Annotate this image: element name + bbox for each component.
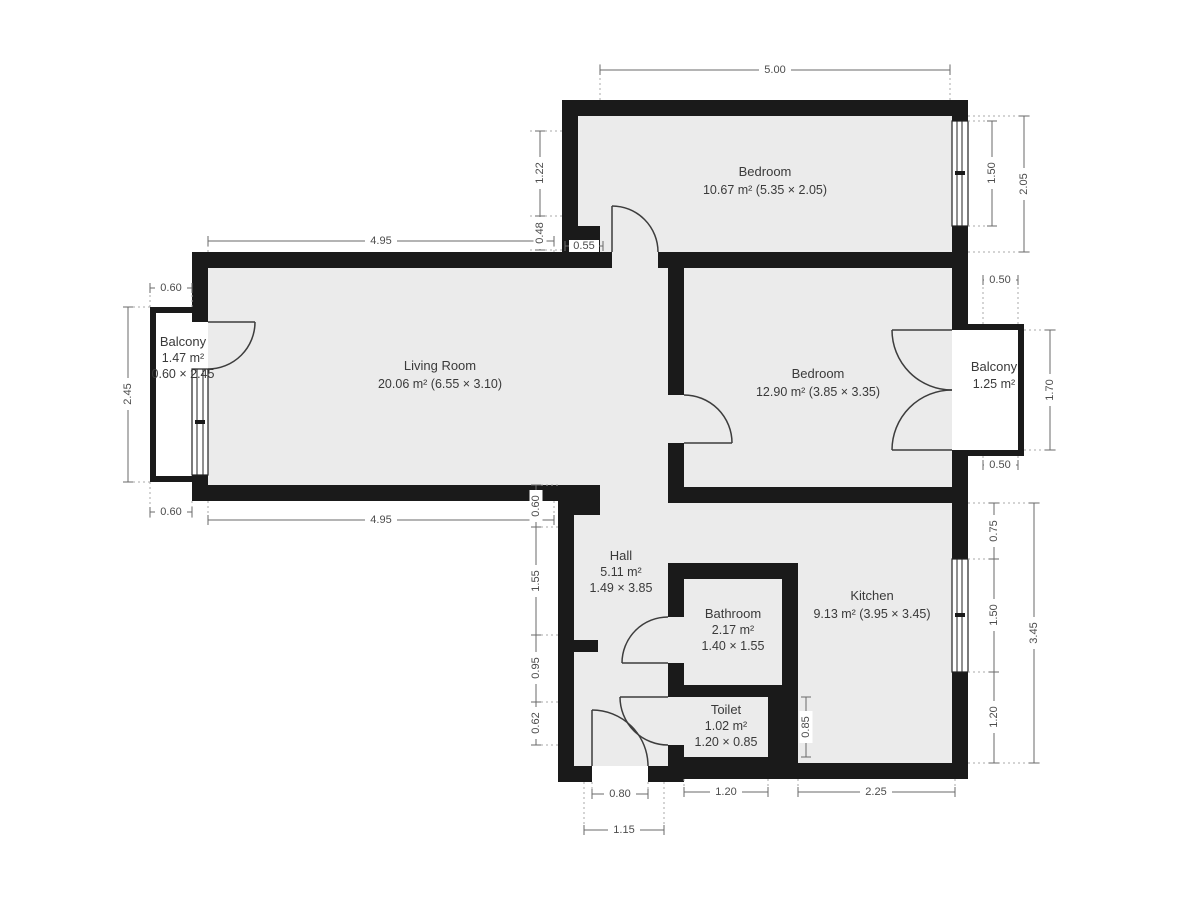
svg-text:Bathroom: Bathroom xyxy=(705,606,761,621)
dim-balcony-right-depth-bottom: 0.50 xyxy=(983,459,1018,472)
dim-label: 1.50 xyxy=(986,162,998,183)
bedroom-right-doorway xyxy=(668,395,684,443)
dim-kitchen-window: 1.50 xyxy=(988,559,1001,672)
dim-kitchen-right-upper: 0.75 xyxy=(988,503,1001,559)
dim-label: 1.20 xyxy=(715,786,736,798)
dim-label: 0.50 xyxy=(989,459,1010,471)
dim-label: 1.55 xyxy=(530,570,542,591)
dim-hall-seg-lower: 0.62 xyxy=(530,702,543,745)
dim-label: 1.50 xyxy=(988,604,1000,625)
dim-toilet-width: 1.20 xyxy=(684,786,768,799)
dim-label: 4.95 xyxy=(370,235,391,247)
svg-text:1.40 × 1.55: 1.40 × 1.55 xyxy=(702,639,765,653)
dim-label: 2.25 xyxy=(865,786,886,798)
bedroom-top-doorway xyxy=(612,252,658,268)
dim-label: 3.45 xyxy=(1028,622,1040,643)
dim-notch-offset: 0.48 xyxy=(534,216,547,250)
dim-hall-step: 0.60 xyxy=(530,485,543,527)
svg-text:2.17 m²: 2.17 m² xyxy=(712,623,754,637)
svg-text:1.47 m²: 1.47 m² xyxy=(162,351,204,365)
dim-label: 0.60 xyxy=(160,506,181,518)
svg-text:Bedroom: Bedroom xyxy=(739,164,792,179)
svg-text:10.67 m² (5.35 × 2.05): 10.67 m² (5.35 × 2.05) xyxy=(703,183,827,197)
label-balcony-right: Balcony 1.25 m² xyxy=(971,359,1018,391)
dim-label: 1.70 xyxy=(1044,379,1056,400)
dim-label: 1.15 xyxy=(613,824,634,836)
floor-plan-canvas: 5.00 4.95 4.95 0.55 0.60 0.60 xyxy=(0,0,1200,900)
dim-hall-seg-upper: 1.55 xyxy=(530,527,543,635)
dim-label: 1.20 xyxy=(988,706,1000,727)
dim-label: 0.60 xyxy=(160,282,181,294)
hall-kitchen-passage xyxy=(668,503,684,563)
dim-label: 0.48 xyxy=(534,222,546,243)
dim-balcony-right-length: 1.70 xyxy=(1044,330,1057,450)
dim-balcony-right-depth-top: 0.50 xyxy=(983,274,1018,287)
dim-kitchen-bottom-width: 2.25 xyxy=(798,786,955,799)
bathroom-doorway xyxy=(668,617,684,663)
dim-label: 1.22 xyxy=(534,162,546,183)
svg-text:Kitchen: Kitchen xyxy=(850,588,893,603)
dim-label: 0.80 xyxy=(609,788,630,800)
dim-bedroom-top-window: 1.50 xyxy=(986,121,999,226)
dim-notch-height: 1.22 xyxy=(534,131,547,216)
dim-bedroom-top-width: 5.00 xyxy=(600,64,950,77)
dim-label: 0.75 xyxy=(988,520,1000,541)
window-kitchen-icon xyxy=(952,559,968,672)
dim-kitchen-right-lower: 1.20 xyxy=(988,672,1001,763)
dim-living-top-width: 4.95 xyxy=(208,235,554,248)
dim-label: 0.62 xyxy=(530,712,542,733)
hall-floor xyxy=(574,485,668,766)
label-balcony-left: Balcony 1.47 m² 0.60 × 2.45 xyxy=(152,334,215,381)
dim-balcony-left-depth-top: 0.60 xyxy=(150,282,192,295)
svg-text:20.06 m² (6.55 × 3.10): 20.06 m² (6.55 × 3.10) xyxy=(378,377,502,391)
dim-label: 0.55 xyxy=(573,240,594,252)
dim-hall-seg-mid: 0.95 xyxy=(530,635,543,702)
dim-label: 2.05 xyxy=(1018,173,1030,194)
dim-label: 0.85 xyxy=(800,716,812,737)
dim-label: 0.95 xyxy=(530,657,542,678)
dim-label: 0.60 xyxy=(530,495,542,516)
svg-text:1.20 × 0.85: 1.20 × 0.85 xyxy=(695,735,758,749)
svg-text:Balcony: Balcony xyxy=(160,334,207,349)
kitchen-floor-top xyxy=(684,503,952,563)
dim-balcony-left-depth-bottom: 0.60 xyxy=(150,506,192,519)
svg-text:1.25 m²: 1.25 m² xyxy=(973,377,1015,391)
svg-text:5.11 m²: 5.11 m² xyxy=(600,565,641,579)
toilet-doorway xyxy=(668,697,684,745)
svg-text:Toilet: Toilet xyxy=(711,702,742,717)
dim-bedroom-top-depth: 2.05 xyxy=(1018,116,1031,252)
svg-text:12.90 m² (3.85 × 3.35): 12.90 m² (3.85 × 3.35) xyxy=(756,385,880,399)
svg-text:0.60 × 2.45: 0.60 × 2.45 xyxy=(152,367,215,381)
floor-plan-page: 5.00 4.95 4.95 0.55 0.60 0.60 xyxy=(0,0,1200,900)
room-floors xyxy=(208,116,952,766)
dim-entry-door-width: 0.80 xyxy=(592,788,648,801)
dim-balcony-left-length: 2.45 xyxy=(122,307,135,482)
svg-text:Hall: Hall xyxy=(610,548,633,563)
dim-label: 2.45 xyxy=(122,383,134,404)
dim-kitchen-depth: 3.45 xyxy=(1028,503,1041,763)
svg-text:Living Room: Living Room xyxy=(404,358,476,373)
dim-label: 5.00 xyxy=(764,64,785,76)
svg-text:Bedroom: Bedroom xyxy=(792,366,845,381)
dim-label: 0.50 xyxy=(989,274,1010,286)
svg-text:9.13 m² (3.95 × 3.45): 9.13 m² (3.95 × 3.45) xyxy=(813,607,930,621)
window-living-room-icon xyxy=(192,369,208,475)
dim-notch-width: 0.55 xyxy=(565,240,603,252)
svg-text:1.49 × 3.85: 1.49 × 3.85 xyxy=(590,581,653,595)
svg-text:Balcony: Balcony xyxy=(971,359,1018,374)
svg-text:1.02 m²: 1.02 m² xyxy=(705,719,747,733)
window-bedroom-top-icon xyxy=(952,121,968,226)
dim-living-bottom-width: 4.95 xyxy=(208,514,554,527)
dim-label: 4.95 xyxy=(370,514,391,526)
dim-entry-total-width: 1.15 xyxy=(584,824,664,837)
